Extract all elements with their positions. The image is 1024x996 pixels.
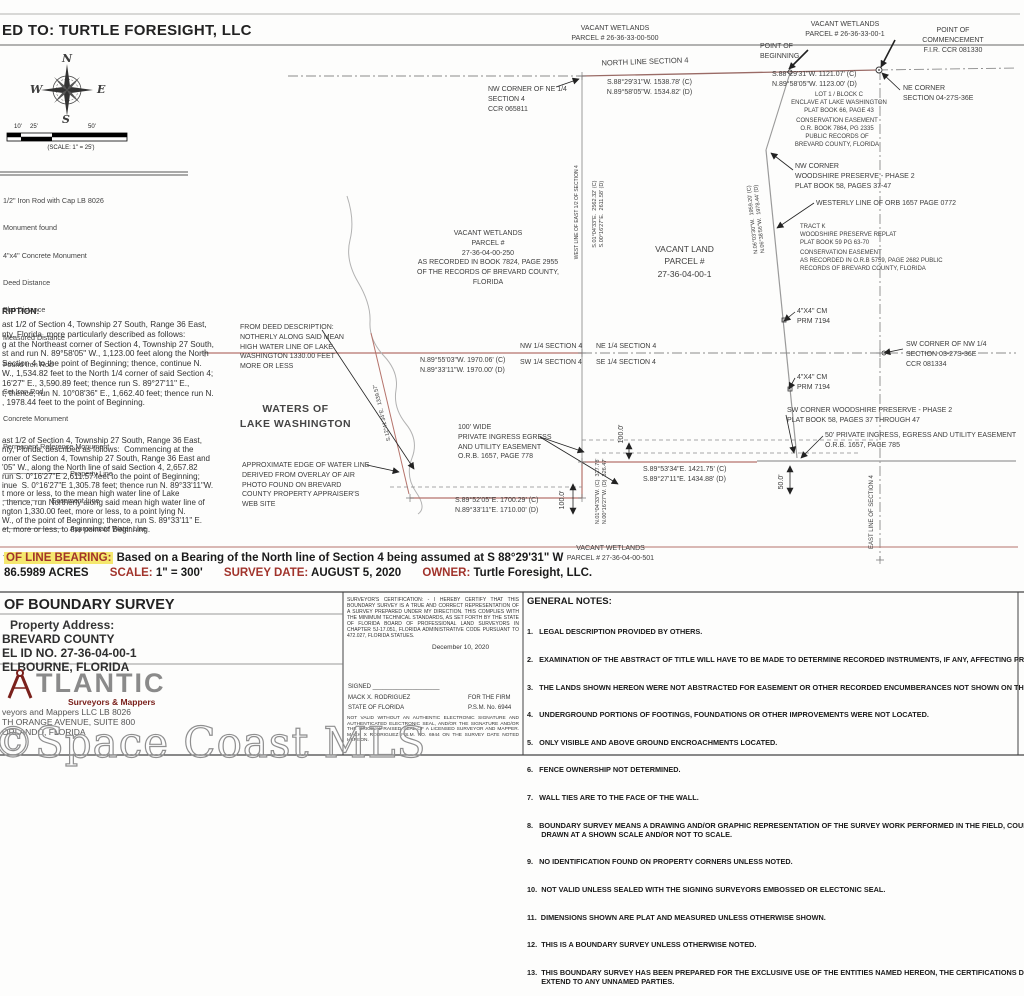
- area-value: 86.5989 ACRES: [4, 567, 89, 579]
- compass-rose: [41, 64, 93, 116]
- note-item-9: 9. NO IDENTIFICATION FOUND ON PROPERTY C…: [527, 857, 1024, 866]
- label-nw-corner-ne-quarter: NW CORNER OF NE 1/4 SECTION 4 CCR 065811: [488, 85, 567, 114]
- space-coast-mls-watermark: ©Space Coast MLS: [0, 718, 426, 767]
- label-vertical-327: N.01°04'33"W. (C) 327.78' N.00°16'27"W. …: [595, 462, 609, 524]
- scale-tick-10: 10': [14, 124, 22, 130]
- note-item-6: 6. FENCE OWNERSHIP NOT DETERMINED.: [527, 765, 1024, 774]
- survey-date-label: SURVEY DATE:: [224, 567, 308, 579]
- note-item-4: 4. UNDERGROUND PORTIONS OF FOOTINGS, FOU…: [527, 710, 1024, 719]
- survey-date-value: AUGUST 5, 2020: [311, 567, 401, 579]
- label-sw-corner-nw-quarter: SW CORNER OF NW 1/4 SECTION 03-27S-36E C…: [906, 340, 987, 369]
- note-item-3: 3. THE LANDS SHOWN HEREON WERE NOT ABSTR…: [527, 683, 1024, 692]
- label-waters-of-lake-washington: WATERS OF LAKE WASHINGTON: [238, 402, 353, 431]
- label-cm-prm-top: 4"X4" CM PRM 7194: [797, 307, 830, 327]
- certified-to-title: ED TO: TURTLE FORESIGHT, LLC: [2, 22, 252, 39]
- firm-line-1: veyors and Mappers LLC LB 8026: [2, 707, 131, 717]
- map-title: OF BOUNDARY SURVEY: [4, 597, 175, 613]
- for-the-firm: FOR THE FIRM: [468, 695, 511, 701]
- label-nw-corner-woodshire: NW CORNER WOODSHIRE PRESERVE - PHASE 2 P…: [795, 162, 915, 191]
- legal-description-1: ast 1/2 of Section 4, Township 27 South,…: [2, 320, 214, 408]
- label-bearing-1700: S.89°52'05"E. 1700.29' (C) N.89°33'11"E.…: [455, 496, 538, 516]
- description-heading: RIPTION:: [2, 306, 39, 316]
- surveyor-license: P.S.M. No. 6944: [468, 705, 511, 711]
- label-approximate-edge-of-water: APPROXIMATE EDGE OF WATER LINE DERIVED F…: [242, 461, 369, 510]
- note-item-11: 11. DIMENSIONS SHOWN ARE PLAT AND MEASUR…: [527, 913, 1024, 922]
- label-cm-prm-bottom: 4"X4" CM PRM 7194: [797, 373, 830, 393]
- label-sw-corner-woodshire: SW CORNER WOODSHIRE PRESERVE - PHASE 2 P…: [787, 406, 952, 426]
- legal-description-2: ast 1/2 of Section 4, Township 27 South,…: [2, 437, 213, 535]
- note-item-1: 1. LEGAL DESCRIPTION PROVIDED BY OTHERS.: [527, 627, 1024, 636]
- label-ne-corner: NE CORNER SECTION 04-27S-36E: [903, 84, 973, 104]
- label-quarter-se: SE 1/4 SECTION 4: [596, 358, 656, 368]
- label-east-line-of-section-4: EAST LINE OF SECTION 4: [868, 467, 876, 557]
- scale-tick-50: 50': [88, 124, 96, 130]
- label-vacant-wetlands-1: VACANT WETLANDS PARCEL # 26-36-33-00-1: [780, 20, 910, 40]
- bearing-value: Based on a Bearing of the North line of …: [117, 552, 564, 564]
- note-item-10: 10. NOT VALID UNLESS SEALED WITH THE SIG…: [527, 885, 1024, 894]
- label-point-of-beginning: POINT OF BEGINNING: [760, 42, 799, 62]
- note-item-7: 7. WALL TIES ARE TO THE FACE OF THE WALL…: [527, 793, 1024, 802]
- legend-item: 4"x4" Concrete Monument: [3, 251, 147, 260]
- note-item-12: 12. THIS IS A BOUNDARY SURVEY UNLESS OTH…: [527, 940, 1024, 949]
- signed-line: SIGNED ____________________: [348, 684, 439, 690]
- label-lot1-block-c: LOT 1 / BLOCK C ENCLAVE AT LAKE WASHINGT…: [778, 91, 900, 115]
- label-vacant-wetlands-250: VACANT WETLANDS PARCEL # 27-36-04-00-250…: [393, 229, 583, 288]
- scale-bar-graphic: [6, 132, 128, 142]
- bearing-label: OF LINE BEARING:: [4, 552, 113, 564]
- survey-info-bar: OF LINE BEARING: Based on a Bearing of t…: [0, 549, 1024, 579]
- scale-value: 1" = 300': [156, 567, 203, 579]
- note-item-2: 2. EXAMINATION OF THE ABSTRACT OF TITLE …: [527, 655, 1024, 664]
- general-notes-heading: GENERAL NOTES:: [527, 596, 612, 607]
- scale-tick-25: 25': [30, 124, 38, 130]
- label-west-line-bearing-vertical: S.01°04'33"E. 2562.32' (C) S.00°16'27"E.…: [592, 149, 606, 279]
- label-north-line-bearing-west: S.88°29'31"W. 1538.78' (C) N.89°58'05"W.…: [562, 78, 737, 98]
- firm-tagline: Surveyors & Mappers: [68, 697, 155, 707]
- scale-label: SCALE:: [110, 567, 153, 579]
- label-from-deed-description: FROM DEED DESCRIPTION: NOTHERLY ALONG SA…: [240, 323, 344, 372]
- graphic-scale-bar: 10' 25' 50' (SCALE: 1" = 25'): [6, 124, 136, 151]
- property-county: BREVARD COUNTY: [2, 632, 114, 646]
- note-item-13: 13. THIS BOUNDARY SURVEY HAS BEEN PREPAR…: [527, 968, 1024, 986]
- north-line-section-4: [288, 68, 1016, 76]
- note-item-5: 5. ONLY VISIBLE AND ABOVE GROUND ENCROAC…: [527, 738, 1024, 747]
- label-dim-100a: 100.0': [617, 419, 627, 449]
- legend-item: 1/2" Iron Rod with Cap LB 8026: [3, 196, 147, 205]
- label-north-line-bearing-east: S.88°29'31"W. 1121.07' (C) N.89°58'05"W.…: [772, 70, 857, 90]
- surveyor-name: MACK X. RODRIGUEZ: [348, 695, 410, 701]
- label-dim-50: 50.0': [777, 469, 787, 495]
- label-vacant-wetlands-500: VACANT WETLANDS PARCEL # 26-36-33-00-500: [530, 24, 700, 44]
- general-notes-list: 1. LEGAL DESCRIPTION PROVIDED BY OTHERS.…: [527, 609, 1024, 996]
- compass-north-label: N: [62, 52, 72, 65]
- owner-label: OWNER:: [422, 567, 470, 579]
- surveyor-state: STATE OF FLORIDA: [348, 705, 404, 711]
- label-westerly-line-orb-1657: WESTERLY LINE OF ORB 1657 PAGE 0772: [816, 199, 956, 209]
- basis-of-bearing-row: OF LINE BEARING: Based on a Bearing of t…: [0, 549, 1024, 564]
- label-conservation-easement-5759: CONSERVATION EASEMENT AS RECORDED IN O.R…: [800, 249, 943, 273]
- label-bearing-1421: S.89°53'34"E. 1421.75' (C) S.89°27'11"E.…: [643, 465, 726, 485]
- label-easement-100ft: 100' WIDE PRIVATE INGRESS EGRESS AND UTI…: [458, 423, 552, 462]
- label-quarter-ne: NE 1/4 SECTION 4: [596, 342, 656, 352]
- owner-value: Turtle Foresight, LLC.: [474, 567, 593, 579]
- firm-name: TLANTIC: [36, 668, 165, 698]
- legend-item: Deed Distance: [3, 278, 147, 287]
- divider-compass-icon: [4, 668, 36, 700]
- label-tract-k: TRACT K WOODSHIRE PRESERVE REPLAT PLAT B…: [800, 223, 896, 247]
- scale-bar-ticks: 10' 25' 50': [6, 124, 136, 132]
- label-quarter-sw: SW 1/4 SECTION 4: [520, 358, 582, 368]
- atlantic-logo: TLANTIC: [4, 668, 165, 700]
- compass-west-label: W: [30, 83, 42, 96]
- scale-bar-caption: (SCALE: 1" = 25'): [6, 145, 136, 151]
- certification-date: December 10, 2020: [432, 644, 489, 651]
- area-scale-date-owner-row: 86.5989 ACRES SCALE: 1" = 300' SURVEY DA…: [0, 564, 1024, 579]
- note-item-8: 8. BOUNDARY SURVEY MEANS A DRAWING AND/O…: [527, 821, 1024, 839]
- surveyor-certification: SURVEYOR'S CERTIFICATION: - I HEREBY CER…: [347, 597, 519, 639]
- legend-item: Monument found: [3, 223, 147, 232]
- label-quarter-line-bearing: N.89°55'03"W. 1970.06' (C) N.89°33'11"W.…: [420, 356, 505, 376]
- label-point-of-commencement: POINT OF COMMENCEMENT F.I.R. CCR 081330: [898, 26, 1008, 55]
- compass-east-label: E: [97, 83, 105, 96]
- label-dim-100b: 100.0': [558, 485, 568, 515]
- label-easement-50ft: 50' PRIVATE INGRESS, EGRESS AND UTILITY …: [825, 431, 1016, 451]
- label-quarter-nw: NW 1/4 SECTION 4: [520, 342, 582, 352]
- label-conservation-easement-7864: CONSERVATION EASEMENT O.R. BOOK 7864, PG…: [778, 117, 896, 149]
- property-address-label: Property Address:: [10, 618, 114, 632]
- label-vacant-land-parcel: VACANT LAND PARCEL # 27-36-04-00-1: [637, 243, 732, 280]
- boundary-survey-page: { "page": { "certified_to": "ED TO: TURT…: [0, 0, 1024, 768]
- legend-item: Concrete Monument: [3, 414, 147, 423]
- label-west-line-vertical: WEST LINE OF EAST 1/2 OF SECTION 4: [574, 162, 581, 262]
- property-parcel-id: EL ID NO. 27-36-04-00-1: [2, 646, 137, 660]
